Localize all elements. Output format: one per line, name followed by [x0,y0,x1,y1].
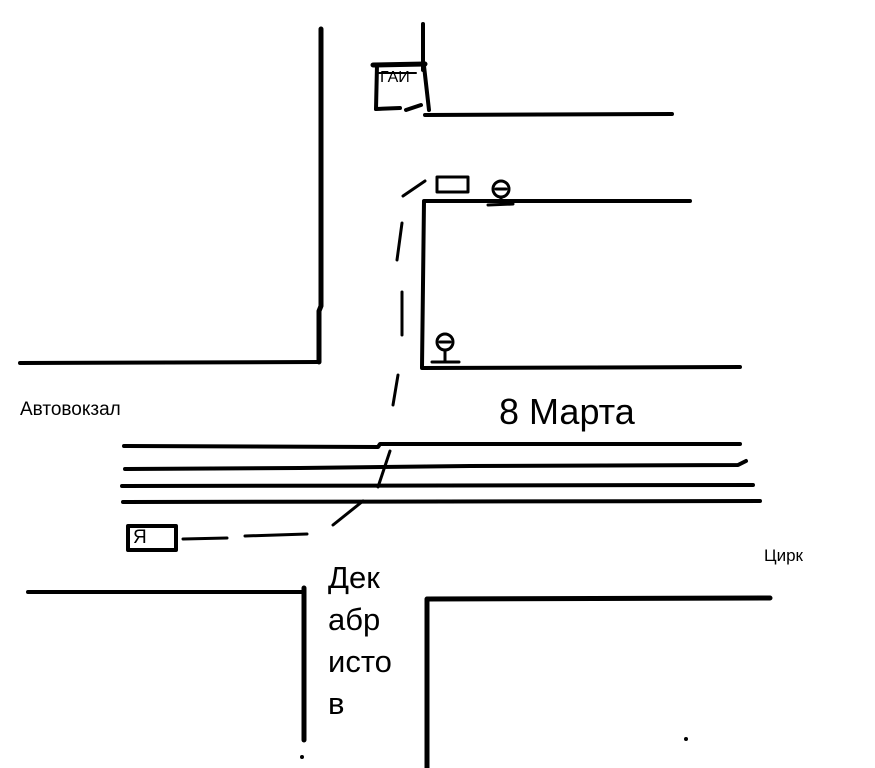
traffic-sign-icon-lower [432,334,459,362]
road-bottom-right [427,598,770,768]
stray-dot-right [684,737,688,741]
map-sketch [0,0,875,768]
tram-tracks-8-marta [122,444,760,502]
label-bus-station: Автовокзал [20,400,121,419]
label-dekabristov-line4: в [328,683,392,725]
gai-building [373,24,429,110]
label-dekabristov-line3: исто [328,641,392,683]
label-me: Я [133,528,147,547]
road-top-left [20,29,321,363]
label-dekabristov-line2: абр [328,599,392,641]
label-dekabristov-line1: Дек [328,557,392,599]
label-circus: Цирк [764,547,803,564]
stray-dot-left [300,755,304,759]
road-middle-block [422,201,740,368]
label-street-dekabristov: Дек абр исто в [328,557,392,725]
road-bottom-left [28,588,304,759]
road-gai-horizontal [425,114,672,115]
paint-canvas: Автовокзал 8 Марта Цирк ГАИ Я Дек абр ис… [0,0,875,768]
bus-stop-rect [437,177,468,192]
label-gai: ГАИ [380,70,410,86]
label-street-8-marta: 8 Марта [499,394,635,430]
